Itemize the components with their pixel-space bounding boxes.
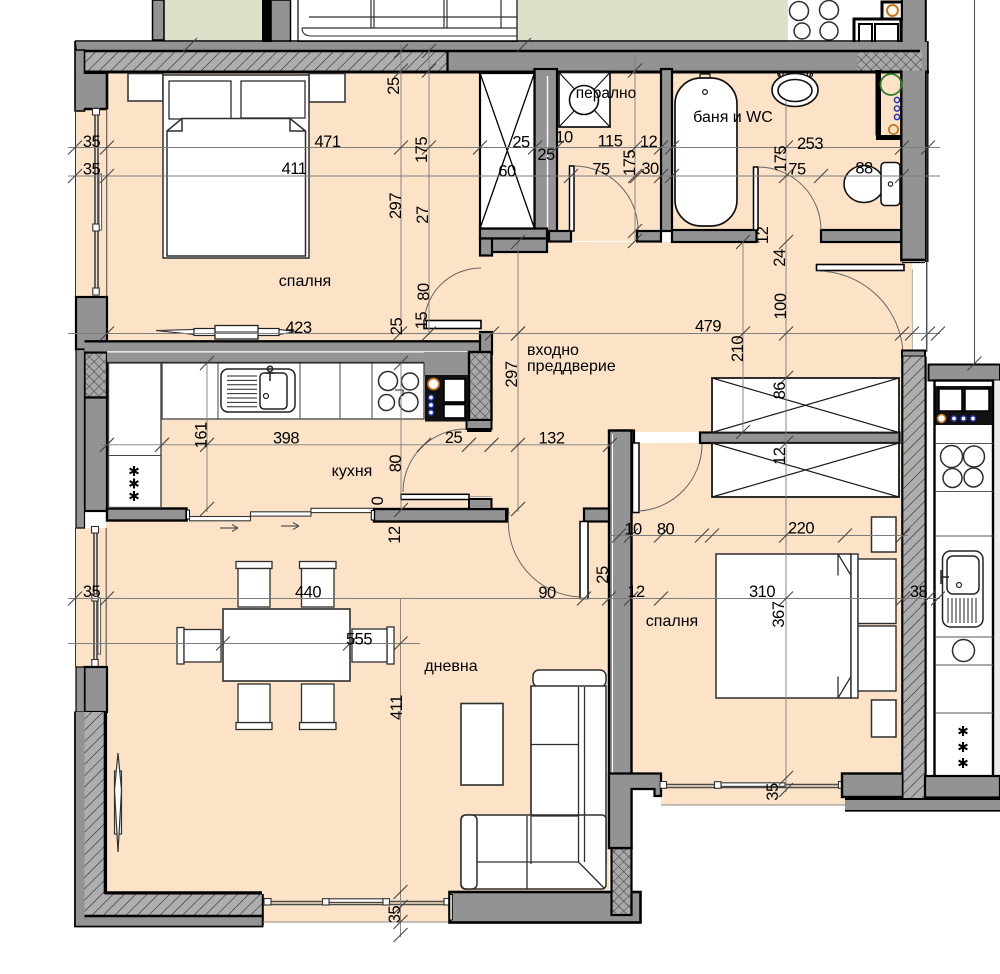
svg-text:35: 35 <box>83 583 101 601</box>
svg-text:27: 27 <box>414 206 432 224</box>
svg-text:10: 10 <box>624 521 642 539</box>
svg-text:175: 175 <box>413 137 431 163</box>
svg-text:10: 10 <box>555 129 573 147</box>
svg-text:12: 12 <box>771 447 789 465</box>
svg-text:398: 398 <box>273 430 299 448</box>
svg-text:220: 220 <box>788 520 814 538</box>
svg-text:60: 60 <box>498 163 516 181</box>
svg-text:35: 35 <box>386 906 404 924</box>
svg-text:баня и WC: баня и WC <box>693 109 773 126</box>
svg-text:25: 25 <box>385 77 403 95</box>
svg-text:367: 367 <box>770 601 788 627</box>
svg-text:555: 555 <box>346 631 372 649</box>
svg-text:80: 80 <box>657 521 675 539</box>
svg-text:12: 12 <box>754 226 772 244</box>
svg-text:дневна: дневна <box>424 658 477 675</box>
svg-text:25: 25 <box>388 318 406 336</box>
svg-text:115: 115 <box>598 133 623 151</box>
svg-text:423: 423 <box>285 319 311 337</box>
svg-text:411: 411 <box>388 695 406 720</box>
svg-text:100: 100 <box>772 293 790 319</box>
svg-text:30: 30 <box>641 160 659 178</box>
svg-text:90: 90 <box>538 584 556 602</box>
svg-text:преддверие: преддверие <box>527 358 616 375</box>
svg-text:297: 297 <box>387 193 405 219</box>
svg-text:25: 25 <box>594 566 612 584</box>
svg-text:12: 12 <box>386 526 404 544</box>
svg-text:25: 25 <box>445 429 463 447</box>
svg-text:440: 440 <box>295 584 321 602</box>
svg-text:175: 175 <box>772 146 790 172</box>
svg-text:35: 35 <box>83 161 101 179</box>
svg-text:спалня: спалня <box>279 273 331 290</box>
svg-text:12: 12 <box>640 133 658 151</box>
svg-text:88: 88 <box>855 160 873 178</box>
svg-text:80: 80 <box>387 455 405 473</box>
svg-text:411: 411 <box>282 160 307 178</box>
svg-text:161: 161 <box>193 422 211 448</box>
svg-text:25: 25 <box>512 134 530 152</box>
svg-text:210: 210 <box>729 336 747 362</box>
svg-text:входно: входно <box>527 342 579 359</box>
svg-text:86: 86 <box>771 382 789 400</box>
svg-text:перално: перално <box>576 85 636 102</box>
svg-text:132: 132 <box>538 430 564 448</box>
svg-text:471: 471 <box>314 133 340 151</box>
svg-text:15: 15 <box>413 312 431 330</box>
svg-text:25: 25 <box>537 146 555 164</box>
svg-text:кухня: кухня <box>332 463 373 480</box>
svg-text:75: 75 <box>788 161 806 179</box>
svg-text:24: 24 <box>771 249 789 267</box>
svg-text:75: 75 <box>592 161 610 179</box>
svg-text:38: 38 <box>910 583 928 601</box>
svg-text:253: 253 <box>797 135 823 153</box>
svg-text:310: 310 <box>749 583 775 601</box>
svg-text:80: 80 <box>415 283 433 301</box>
svg-text:0: 0 <box>369 496 387 505</box>
svg-text:35: 35 <box>83 133 101 151</box>
svg-text:175: 175 <box>621 150 639 176</box>
svg-text:12: 12 <box>627 583 645 601</box>
svg-text:479: 479 <box>695 318 721 336</box>
svg-text:297: 297 <box>503 361 521 387</box>
svg-text:35: 35 <box>764 783 782 801</box>
svg-text:спалня: спалня <box>646 613 698 630</box>
